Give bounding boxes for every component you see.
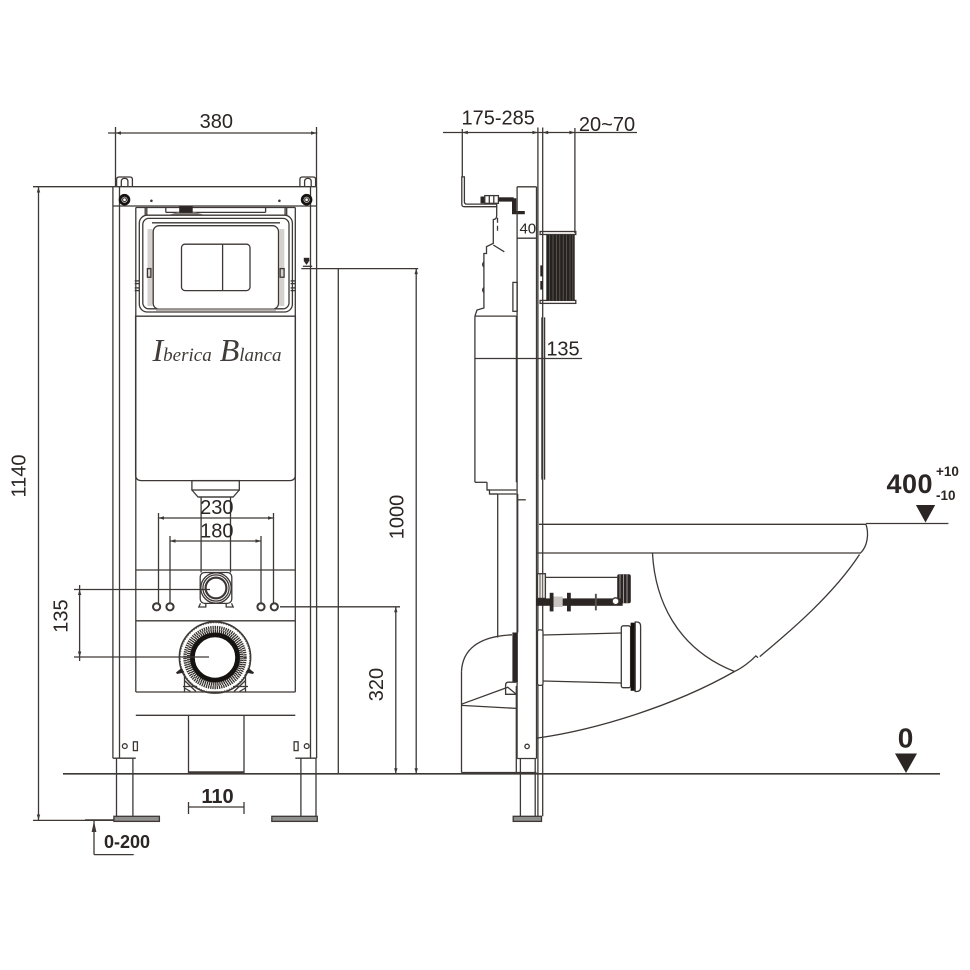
svg-text:135: 135 [51,599,73,632]
svg-text:180: 180 [200,521,233,543]
svg-text:230: 230 [200,497,233,519]
svg-text:135: 135 [546,339,579,361]
svg-text:110: 110 [201,786,233,808]
svg-text:1140: 1140 [9,454,31,497]
svg-text:-10: -10 [936,488,956,503]
svg-text:+10: +10 [936,464,959,479]
svg-text:380: 380 [200,111,233,133]
svg-text:320: 320 [366,668,388,701]
svg-text:1000: 1000 [387,495,409,540]
svg-text:0: 0 [898,723,914,754]
svg-text:20~70: 20~70 [579,114,635,136]
svg-text:175-285: 175-285 [461,108,534,130]
svg-text:40: 40 [519,221,536,238]
svg-text:Iberica Blanca: Iberica Blanca [152,332,282,368]
svg-text:400: 400 [887,469,934,499]
svg-text:0-200: 0-200 [104,832,150,852]
